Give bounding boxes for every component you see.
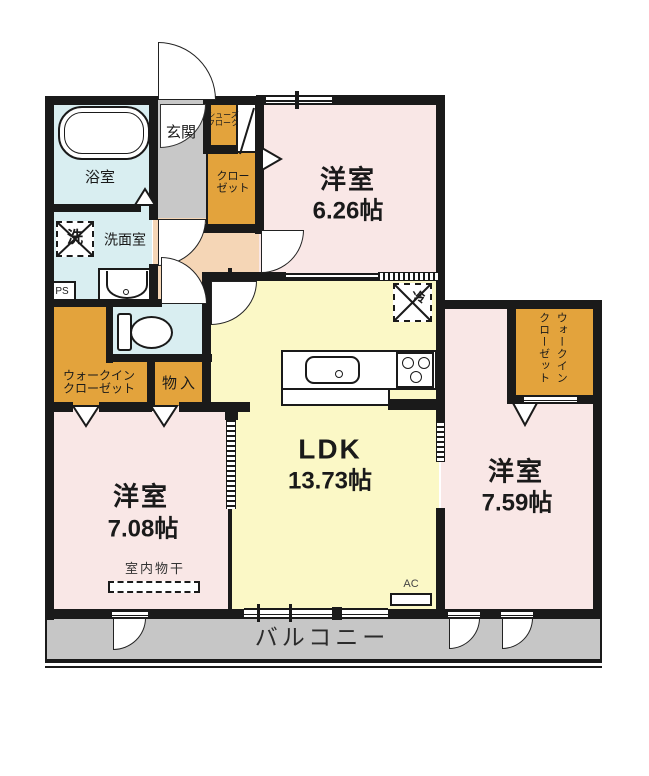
genkan-label: 玄関 (166, 125, 196, 141)
toilet-bowl-icon (130, 316, 173, 349)
window-tick (289, 604, 292, 622)
bedroom3-label: 洋室 (488, 458, 544, 485)
ac-unit-icon (390, 593, 432, 606)
storage-label: 物入 (162, 376, 198, 392)
wall (45, 299, 108, 307)
sliding-door-panels (436, 421, 445, 462)
kitchen-counter-front (281, 388, 390, 406)
wic-left-label: ウォークイン クローゼット (63, 369, 135, 394)
bedroom1-label: 洋室 (320, 166, 376, 193)
bath-door-fold-icon (134, 188, 157, 206)
wall (45, 96, 157, 105)
folding-door-icon (150, 405, 178, 428)
wic-right-label: ウォークイン クローゼット (534, 312, 569, 396)
sink-drain-icon (335, 370, 343, 378)
window-tick (295, 91, 299, 109)
bedroom2-size: 7.08帖 (108, 516, 179, 541)
drying-rail-icon (108, 581, 200, 593)
sliding-door-panels (378, 272, 438, 281)
bathtub-inner (64, 112, 144, 154)
wall (45, 96, 54, 620)
ldk-label: LDK (298, 434, 362, 463)
wall (203, 145, 238, 154)
window-tick (257, 604, 260, 622)
wall (593, 300, 602, 619)
wall (106, 354, 212, 362)
shoe-closet-door-line (238, 104, 256, 156)
ldk-size: 13.73帖 (288, 468, 372, 493)
window (266, 95, 332, 105)
basin-drain-icon (123, 289, 129, 295)
burner-icon (418, 357, 430, 369)
closet-label: クロー ゼット (217, 171, 250, 194)
wall (106, 299, 162, 307)
wall (436, 300, 602, 309)
sliding-door-track-line (228, 509, 232, 610)
folding-door-icon (261, 147, 283, 171)
folding-door-icon (72, 405, 100, 428)
sliding-door-panels (226, 420, 236, 509)
wall (225, 402, 238, 420)
window-mullion (332, 607, 342, 620)
washer-label: 洗 (67, 231, 83, 248)
wall (436, 300, 445, 421)
bedroom3-size: 7.59帖 (482, 490, 553, 515)
wall (45, 402, 73, 412)
floor-plan: 洗 PS 冷 AC (0, 0, 649, 776)
bath-label: 浴室 (85, 170, 115, 186)
wall (203, 224, 261, 233)
wall (99, 402, 152, 412)
balcony-outer-line (45, 666, 602, 668)
burner-icon (410, 371, 422, 383)
folding-door-icon (512, 402, 538, 427)
wall (507, 300, 516, 404)
washroom-label: 洗面室 (104, 233, 146, 248)
shoe-closet-label: シューズ クローク (207, 112, 239, 129)
fridge-label: 冷 (412, 291, 425, 305)
sliding-door-track (286, 273, 380, 281)
window (244, 608, 388, 619)
wall (45, 204, 141, 212)
bedroom2-label: 洋室 (113, 483, 169, 510)
wall (436, 508, 445, 610)
wall (203, 272, 286, 281)
balcony-label: バルコニー (255, 625, 390, 649)
burner-icon (402, 357, 414, 369)
pipe-space-label: PS (55, 287, 68, 298)
drying-label: 室内物干 (125, 562, 185, 576)
entrance-door-swing (158, 42, 216, 100)
bedroom1-size: 6.26帖 (313, 198, 384, 223)
ac-label: AC (403, 579, 418, 591)
wall (179, 402, 250, 412)
balcony-edge-line (45, 659, 602, 663)
kitchen-sink-icon (305, 356, 360, 384)
wall (330, 95, 445, 105)
wall (577, 395, 596, 404)
